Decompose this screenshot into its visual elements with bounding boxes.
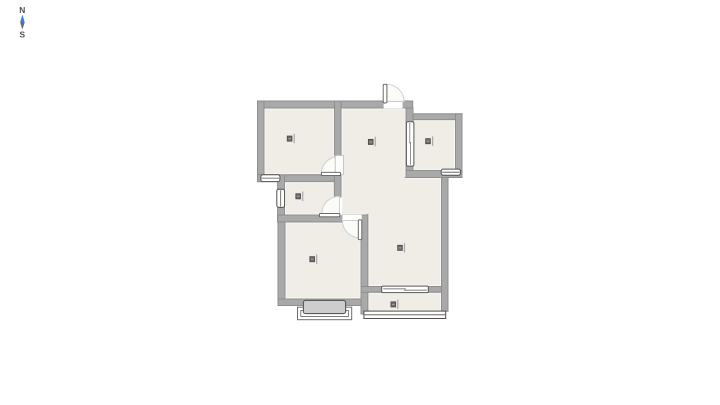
svg-text:S: S	[20, 29, 26, 39]
svg-text:N: N	[19, 5, 25, 15]
